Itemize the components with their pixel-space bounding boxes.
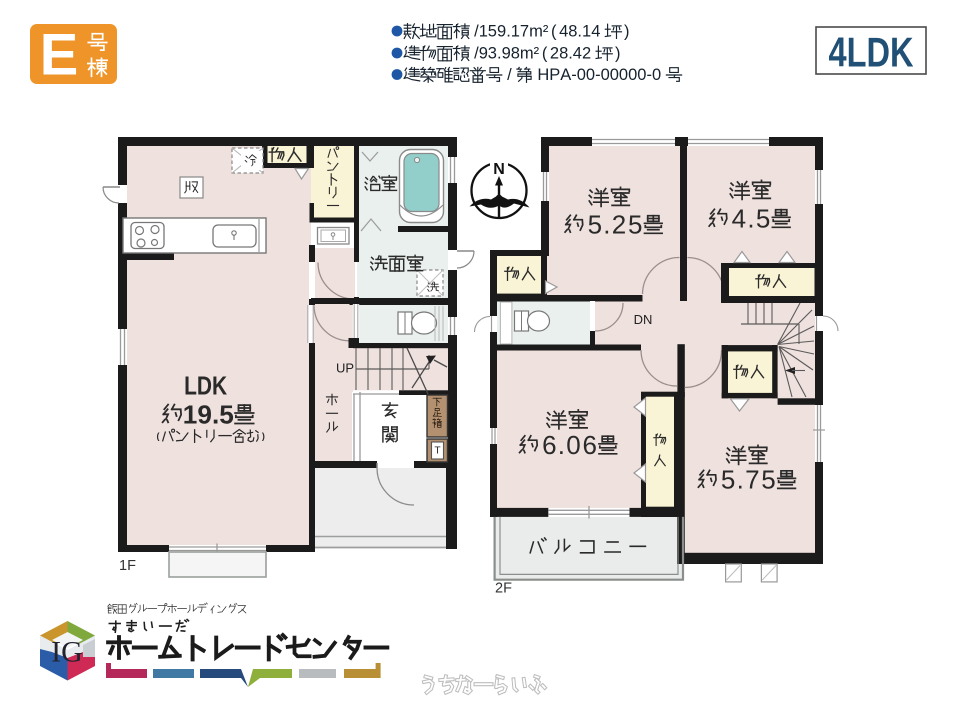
svg-text:7: 7 (520, 23, 529, 41)
svg-text:/: / (507, 66, 512, 84)
svg-text:0: 0 (619, 66, 628, 84)
svg-text:E: E (40, 23, 79, 88)
svg-text:8: 8 (559, 45, 568, 63)
svg-text:IG: IG (51, 636, 83, 669)
svg-text:5: 5 (488, 23, 497, 41)
svg-text:2: 2 (550, 45, 559, 63)
svg-text:4: 4 (573, 45, 582, 63)
svg-text:): ) (624, 23, 630, 41)
svg-text:DN: DN (634, 312, 653, 327)
svg-text:(: ( (542, 45, 548, 63)
svg-text:0: 0 (566, 430, 580, 460)
svg-text:.: . (603, 210, 610, 240)
svg-text:8: 8 (511, 45, 520, 63)
svg-text:9: 9 (497, 23, 506, 41)
svg-text:N: N (493, 161, 505, 178)
svg-text:8: 8 (568, 23, 577, 41)
svg-text:T: T (434, 446, 440, 457)
svg-text:2F: 2F (495, 581, 512, 597)
svg-text:5: 5 (761, 465, 775, 495)
svg-text:6: 6 (542, 430, 556, 460)
svg-text:5: 5 (588, 210, 602, 240)
svg-text:): ) (615, 45, 621, 63)
svg-text:.: . (212, 399, 219, 429)
svg-text:1: 1 (582, 23, 591, 41)
svg-text:H: H (537, 66, 549, 84)
svg-text:0: 0 (586, 66, 595, 84)
svg-text:1F: 1F (119, 558, 136, 574)
svg-text:(: ( (551, 23, 557, 41)
svg-text:4: 4 (559, 23, 568, 41)
svg-text:2: 2 (582, 45, 591, 63)
svg-text:0: 0 (652, 66, 661, 84)
svg-text:7: 7 (745, 465, 759, 495)
svg-text:0: 0 (628, 66, 637, 84)
svg-text:1: 1 (183, 399, 198, 429)
svg-text:0: 0 (610, 66, 619, 84)
svg-text:9: 9 (502, 45, 511, 63)
svg-text:.: . (558, 430, 565, 460)
svg-text:P: P (549, 66, 560, 84)
svg-text:A: A (560, 66, 571, 84)
svg-text:1: 1 (479, 23, 488, 41)
svg-text:4: 4 (732, 204, 746, 234)
svg-text:2: 2 (612, 210, 626, 240)
svg-text:): ) (262, 431, 265, 441)
svg-text:5: 5 (628, 210, 642, 240)
svg-text:9: 9 (197, 399, 212, 429)
svg-text:5: 5 (219, 399, 234, 429)
svg-text:.: . (747, 204, 754, 234)
svg-text:6: 6 (582, 430, 596, 460)
svg-text:5: 5 (721, 465, 735, 495)
svg-text:9: 9 (479, 45, 488, 63)
svg-text:5: 5 (756, 204, 770, 234)
svg-text:4: 4 (591, 23, 600, 41)
svg-text:4LDK: 4LDK (829, 29, 914, 76)
svg-text:.: . (737, 465, 744, 495)
svg-text:m: m (520, 45, 534, 63)
svg-text:0: 0 (601, 66, 610, 84)
svg-text:(: ( (157, 431, 160, 441)
svg-text:0: 0 (577, 66, 586, 84)
svg-text:²: ² (543, 23, 549, 41)
svg-text:m: m (529, 23, 543, 41)
svg-text:²: ² (534, 45, 540, 63)
svg-text:UP: UP (336, 361, 354, 376)
svg-text:1: 1 (511, 23, 520, 41)
svg-text:0: 0 (637, 66, 646, 84)
svg-text:LDK: LDK (184, 371, 227, 401)
svg-text:3: 3 (488, 45, 497, 63)
